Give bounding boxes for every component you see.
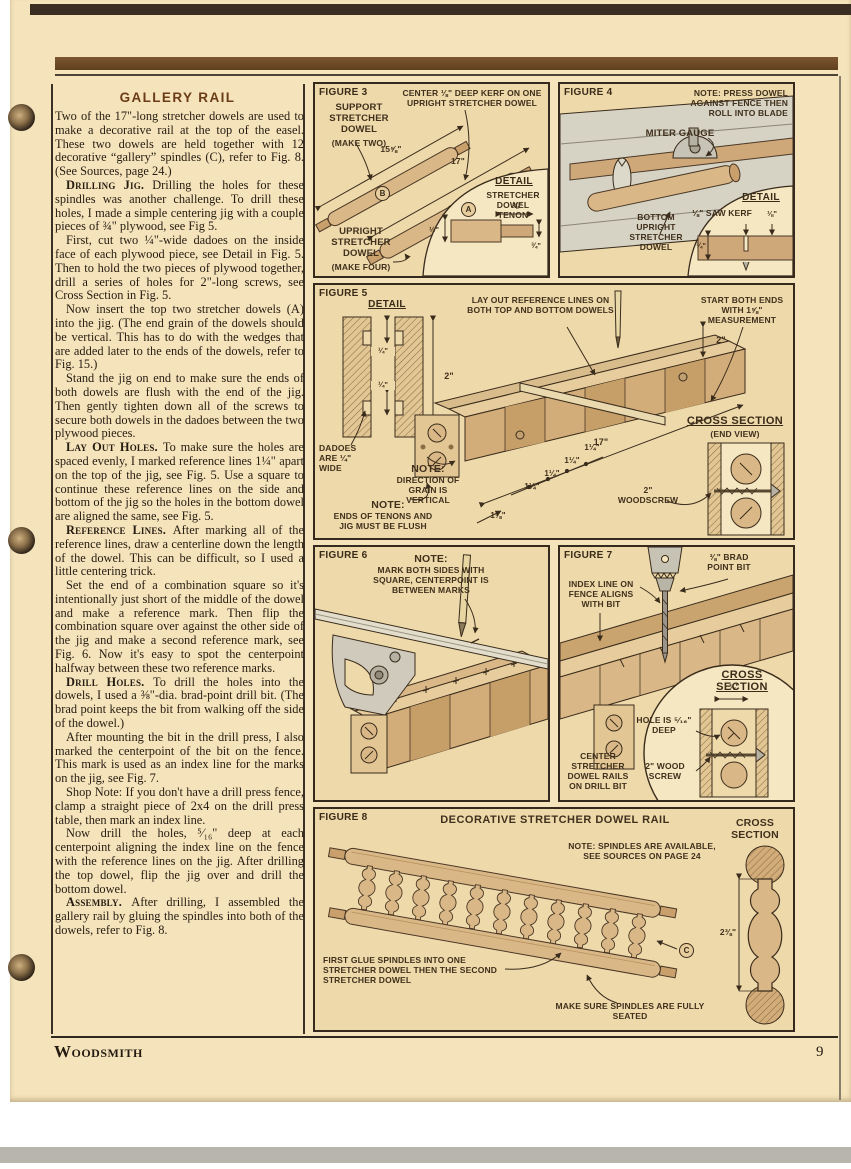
- fig4-kerf-label: ⅛" SAW KERF: [692, 208, 752, 218]
- fig4-bottom-label: BOTTOM UPRIGHT STRETCHER DOWEL: [618, 212, 694, 252]
- fig5-dim-quarter-top: ¼": [371, 347, 395, 356]
- paragraph: Stand the jig on end to make sure the en…: [55, 372, 304, 441]
- fig8-glue-label: FIRST GLUE SPINDLES INTO ONE STRETCHER D…: [323, 955, 503, 985]
- fig8-cross-title: CROSS SECTION: [721, 817, 789, 842]
- paragraph: Drill Holes. To drill the holes into the…: [55, 676, 304, 731]
- fig7-bit-label: ⅜" BRAD POINT BIT: [700, 552, 758, 572]
- fig3-letter-b: B: [375, 186, 390, 201]
- paragraph: Now insert the top two stretcher dowels …: [55, 303, 304, 372]
- fig3-dim-78: ⅞": [503, 202, 531, 211]
- paragraph: Assembly. After drilling, I assembled th…: [55, 896, 304, 937]
- page-title: GALLERY RAIL: [51, 90, 304, 105]
- fig3-dim-12: ½": [423, 226, 445, 235]
- punch-hole: [8, 104, 35, 131]
- fig4-note: NOTE: PRESS DOWEL AGAINST FENCE THEN ROL…: [688, 88, 788, 118]
- punch-hole: [8, 527, 35, 554]
- fig3-upright-label: UPRIGHT STRETCHER DOWEL: [319, 226, 403, 260]
- footer-brand: Woodsmith: [54, 1042, 143, 1062]
- paragraph: Drilling Jig. Drilling the holes for the…: [55, 179, 304, 234]
- fig5-note2-lead: NOTE:: [355, 499, 421, 511]
- fig8-dim: 2⅜": [715, 927, 741, 937]
- figure-label: FIGURE 4: [564, 87, 613, 98]
- fig7-index-label: INDEX LINE ON FENCE ALIGNS WITH BIT: [564, 579, 638, 609]
- article-body: Two of the 17"-long stretcher dowels are…: [55, 110, 304, 1034]
- fig6-note: MARK BOTH SIDES WITH SQUARE, CENTERPOINT…: [361, 565, 501, 595]
- fig5-dim-114-4: 1¼": [517, 482, 547, 491]
- fig5-note1-lead: NOTE:: [395, 463, 461, 475]
- fig4-dim-34: ¾": [692, 242, 710, 251]
- figure-5-panel: FIGURE 5 DETAIL ¼" ¼" 2" DADOES ARE ¼" W…: [313, 283, 795, 540]
- fig5-start-note: START BOTH ENDS WITH 1⅝" MEASUREMENT: [695, 295, 789, 325]
- fig6-note-lead: NOTE:: [401, 553, 461, 565]
- fig5-layout-note: LAY OUT REFERENCE LINES ON BOTH TOP AND …: [463, 295, 618, 315]
- fig8-title: DECORATIVE STRETCHER DOWEL RAIL: [435, 814, 675, 827]
- fig5-note2: ENDS OF TENONS AND JIG MUST BE FLUSH: [333, 511, 433, 531]
- paragraph: First, cut two ¼"-wide dadoes on the ins…: [55, 234, 304, 303]
- column-rule-left: [51, 84, 53, 1034]
- fig3-dim-15: 15⅝": [371, 144, 411, 154]
- scan-bottom-band: [0, 1147, 851, 1163]
- figure-4-panel: FIGURE 4 NOTE: PRESS DOWEL AGAINST FENCE…: [558, 82, 795, 278]
- paragraph: Two of the 17"-long stretcher dowels are…: [55, 110, 304, 179]
- fig5-dadoes-label: DADOES ARE ¼" WIDE: [319, 443, 375, 473]
- fig5-screw-label: 2" WOODSCREW: [617, 485, 679, 505]
- fig8-seated-label: MAKE SURE SPINDLES ARE FULLY SEATED: [555, 1001, 705, 1021]
- fig5-dim-114-2: 1¼": [557, 456, 587, 465]
- magazine-page: GALLERY RAIL Two of the 17"-long stretch…: [0, 0, 851, 1169]
- fig5-detail-title: DETAIL: [357, 299, 417, 310]
- paragraph: Set the end of a combination square so i…: [55, 579, 304, 676]
- paragraph: Lay Out Holes. To make sure the holes ar…: [55, 441, 304, 524]
- figure-8-panel: FIGURE 8 DECORATIVE STRETCHER DOWEL RAIL…: [313, 807, 795, 1032]
- figure-6-panel: FIGURE 6 NOTE: MARK BOTH SIDES WITH SQUA…: [313, 545, 550, 802]
- figure-3-panel: FIGURE 3 CENTER ⅛" DEEP KERF ON ONE UPRI…: [313, 82, 550, 278]
- fig7-hole-label: HOLE IS ⁵⁄₁₆" DEEP: [634, 715, 694, 735]
- page-edge-right: [839, 76, 841, 1100]
- figure-label: FIGURE 3: [319, 87, 368, 98]
- fig7-dim-38: ⅜": [720, 683, 748, 692]
- fig7-center-label: CENTER STRETCHER DOWEL RAILS ON DRILL BI…: [562, 751, 634, 791]
- fig5-cross-title: CROSS SECTION: [683, 415, 787, 427]
- fig5-dim-114-3: 1¼": [537, 469, 567, 478]
- fig4-detail-title: DETAIL: [736, 192, 786, 203]
- fig5-dim-114-1: 1¼": [577, 443, 607, 452]
- fig5-dim-quarter-bottom: ¼": [371, 381, 395, 390]
- fig7-screw-label: 2" WOOD SCREW: [636, 761, 694, 781]
- paragraph: Now drill the holes, ⁵⁄₁₆" deep at each …: [55, 827, 304, 896]
- fig3-kerf-note: CENTER ⅛" DEEP KERF ON ONE UPRIGHT STRET…: [399, 88, 545, 108]
- header-rule-thin: [55, 74, 838, 76]
- fig5-cross-sub: (END VIEW): [699, 429, 771, 439]
- fig3-support-label: SUPPORT STRETCHER DOWEL: [319, 102, 399, 136]
- fig8-letter-c: C: [679, 943, 694, 958]
- fig3-letter-a: A: [461, 202, 476, 217]
- fig5-dim-2-detail: 2": [437, 371, 461, 382]
- fig4-dim-18: ⅛": [760, 210, 784, 219]
- header-rule-brown: [55, 57, 838, 70]
- fig5-dim-158: 1⅝": [483, 511, 513, 520]
- figure-label: FIGURE 7: [564, 550, 613, 561]
- figure-8-illustration: [315, 809, 793, 1030]
- figure-7-panel: FIGURE 7 ⅜" BRAD POINT BIT INDEX LINE ON…: [558, 545, 795, 802]
- fig3-detail-title: DETAIL: [487, 176, 541, 187]
- figure-label: FIGURE 5: [319, 288, 368, 299]
- figure-label: FIGURE 8: [319, 812, 368, 823]
- paragraph: Shop Note: If you don't have a drill pre…: [55, 786, 304, 827]
- figure-label: FIGURE 6: [319, 550, 368, 561]
- punch-hole: [8, 954, 35, 981]
- page-number: 9: [816, 1044, 824, 1061]
- fig8-note: NOTE: SPINDLES ARE AVAILABLE, SEE SOURCE…: [563, 841, 721, 861]
- fig3-dim-34: ¾": [525, 242, 547, 251]
- paragraph: Reference Lines. After marking all of th…: [55, 524, 304, 579]
- footer-rule: [51, 1036, 838, 1038]
- fig4-miter-label: MITER GAUGE: [638, 128, 722, 139]
- fig3-dim-17: 17": [443, 156, 473, 166]
- paragraph: After mounting the bit in the drill pres…: [55, 731, 304, 786]
- top-edge-bar: [30, 4, 851, 15]
- fig5-dim-2-right: 2": [709, 335, 733, 346]
- fig3-upright-sub: (MAKE FOUR): [319, 262, 403, 272]
